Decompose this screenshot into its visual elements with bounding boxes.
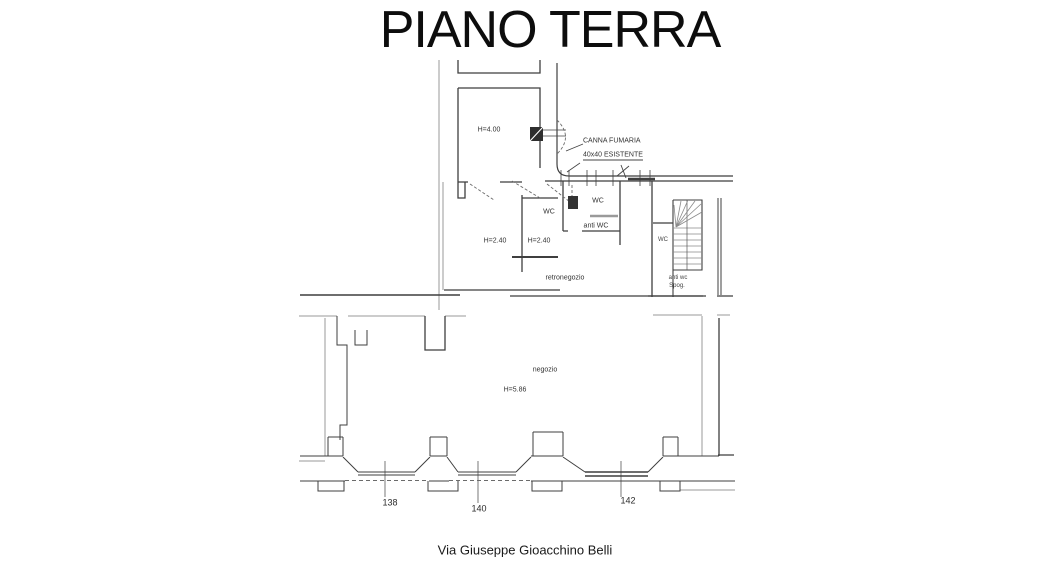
flue-note-line2: 40x40 ESISTENTE bbox=[583, 152, 643, 161]
room-label-spogliatoio-line2: Spog. bbox=[669, 283, 685, 289]
flue-ticks bbox=[543, 130, 566, 136]
street-number-138: 138 bbox=[382, 499, 397, 508]
street-number-140: 140 bbox=[471, 505, 486, 514]
street-name: Via Giuseppe Gioacchino Belli bbox=[438, 544, 613, 557]
room-label-retronegozio: retronegozio bbox=[546, 275, 585, 282]
facade-sills bbox=[358, 472, 516, 475]
height-label-back-left: H=2.40 bbox=[484, 238, 507, 245]
flue-note-line1: CANNA FUMARIA bbox=[583, 138, 641, 145]
stair-treads bbox=[673, 228, 702, 264]
room-label-wc-back: WC bbox=[543, 209, 555, 216]
flue-dashed-arc bbox=[557, 120, 566, 154]
height-label-negozio: H=5.86 bbox=[504, 387, 527, 394]
facade bbox=[300, 456, 735, 503]
wall-top-u-room bbox=[458, 60, 540, 73]
walls-dark bbox=[300, 60, 734, 456]
facade-splays bbox=[343, 457, 663, 472]
height-label-back-right: H=2.40 bbox=[528, 238, 551, 245]
facade-sill-closed bbox=[585, 472, 648, 476]
wall-pier-filled bbox=[568, 196, 578, 209]
floor-plan-page: PIANO TERRA bbox=[0, 0, 1042, 566]
height-label-main-room: H=4.00 bbox=[478, 127, 501, 134]
window-piers bbox=[328, 432, 678, 456]
room-label-negozio: negozio bbox=[533, 367, 558, 374]
facade-pilaster-bumps bbox=[318, 481, 680, 491]
flue-leader-lines bbox=[566, 144, 583, 172]
stair-winder-fan bbox=[674, 200, 702, 227]
wall-right-lower bbox=[718, 318, 734, 456]
wall-main-room bbox=[458, 88, 540, 182]
door-swings bbox=[470, 181, 572, 202]
pier-a bbox=[425, 316, 445, 350]
street-number-142: 142 bbox=[620, 497, 635, 506]
room-label-spogliatoio-line1: anti wc bbox=[669, 275, 688, 281]
wall-negozio-left bbox=[299, 318, 325, 461]
floor-plan-drawing bbox=[0, 0, 1042, 566]
room-label-wc-stairs: WC bbox=[658, 237, 668, 243]
room-label-wc-mid: WC bbox=[592, 198, 604, 205]
room-label-anti-wc: anti WC bbox=[584, 223, 609, 230]
wall-right-double bbox=[718, 198, 721, 295]
wall-back-divider bbox=[522, 195, 558, 272]
wall-pier-small bbox=[458, 182, 465, 198]
wall-left-jog bbox=[337, 316, 367, 440]
